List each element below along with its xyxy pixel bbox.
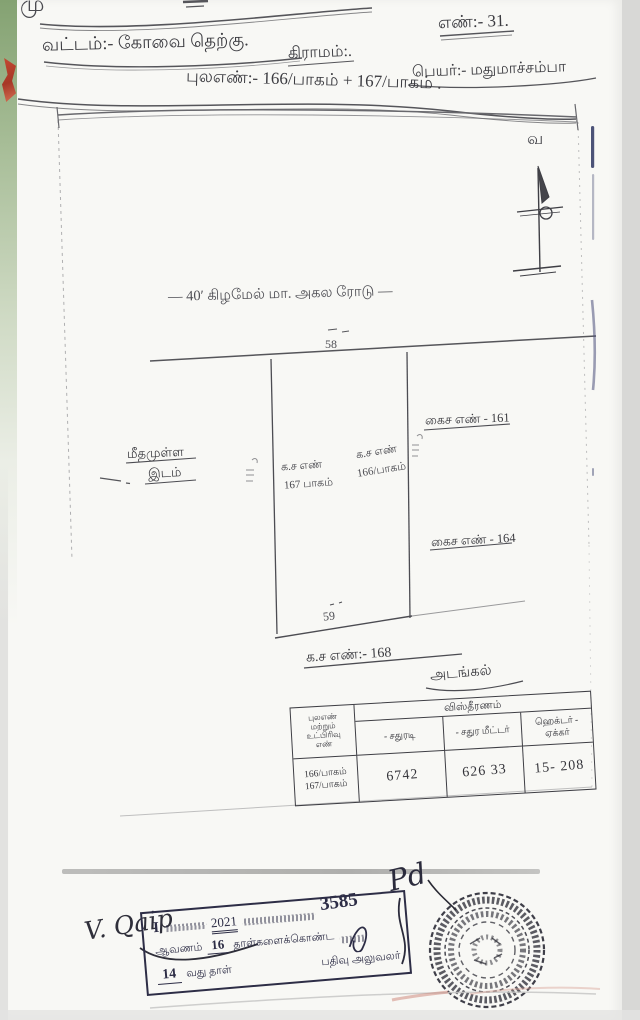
table-col-sqm: - சதுர மீட்டர் — [443, 713, 523, 751]
bottom-width-measure: 59 — [322, 608, 336, 624]
north-letter: வ — [527, 129, 543, 151]
illegible-scribble — [164, 921, 206, 931]
background-bottom-strip — [0, 1010, 640, 1020]
sqm-value: 626 33 — [462, 762, 508, 782]
stamp-doc-word: ஆவணம் — [155, 941, 203, 959]
table-row-plots: 166/பாகம் 167/பாகம் — [293, 756, 359, 806]
table-col-sqft: - சதுரடி — [355, 717, 445, 756]
table-rowheader-cell: புலஎண் மற்றும் உட்பிரிவு எண் — [291, 705, 358, 759]
plot-number: 167/பாகம் — [305, 779, 348, 794]
table-value-hectare: 15- 208 — [523, 743, 595, 793]
table-col-hectare: ஹெக்டர் - ஏக்கர் — [521, 709, 593, 747]
rowheader-line: எண் — [316, 740, 333, 750]
top-width-measure: 58 — [325, 337, 337, 352]
east-neighbour-top: கைச எண் - 161 — [425, 411, 510, 430]
sqft-value: 6742 — [385, 767, 418, 786]
fold-crease-line — [62, 869, 540, 874]
document-number: எண்:- 31. — [438, 11, 510, 35]
area-table: புலஎண் மற்றும் உட்பிரிவு எண் விஸ்தீரணம் … — [289, 691, 596, 807]
officer-signature-squiggle — [341, 909, 378, 954]
stamp-page-number: 14 — [157, 966, 182, 985]
west-label-line2: இடம் — [148, 464, 182, 483]
paper-sheet — [8, 0, 622, 1020]
stamp-prefix: I — [153, 920, 160, 937]
registering-officer-label: பதிவு அலுவலர் — [321, 950, 401, 971]
hectare-value: 15- 208 — [534, 758, 585, 778]
village-line: கிராமம்:. — [288, 42, 353, 64]
table-value-sqm: 626 33 — [445, 747, 525, 797]
plot-left-label-line1: க.ச எண் — [281, 459, 323, 476]
scanned-survey-document: மு எண்:- 31. வட்டம்:- கோவை தெற்கு. கிராம… — [0, 0, 640, 1020]
illegible-scribble — [242, 912, 316, 925]
stamp-sheets-word: தாள்களைக்கொண்ட — [233, 930, 335, 952]
stamp-page-word: வது தாள் — [186, 964, 233, 982]
stamp-sheet-count: 16 — [207, 936, 229, 955]
stamp-year: 2021 — [210, 913, 237, 934]
west-label-line1: மீதமுள்ள — [127, 444, 184, 463]
top-cutoff-text: மு — [20, 0, 44, 20]
background-right-strip — [622, 0, 640, 1020]
table-value-sqft: 6742 — [357, 751, 447, 802]
